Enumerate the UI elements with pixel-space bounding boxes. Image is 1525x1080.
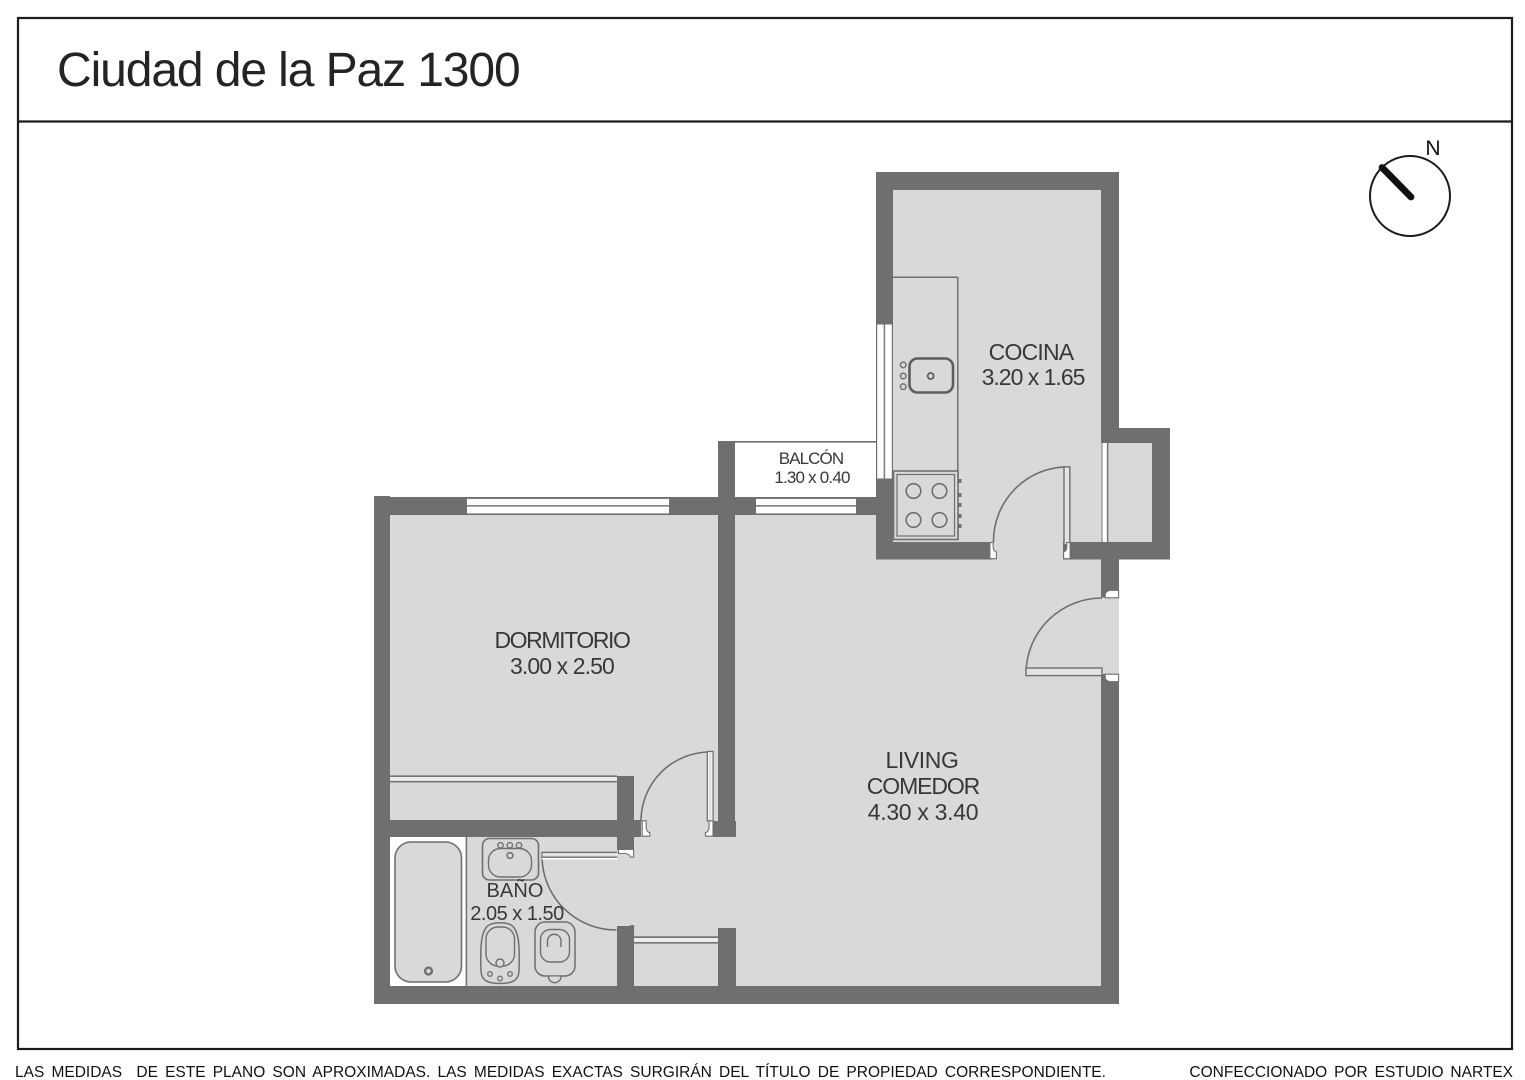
svg-text:BALCÓN: BALCÓN (779, 449, 844, 468)
svg-text:LAS MEDIDAS DE ESTE PLANO SON: LAS MEDIDAS DE ESTE PLANO SON APROXIMADA… (15, 1064, 1106, 1080)
svg-text:4.30 x 3.40: 4.30 x 3.40 (868, 799, 979, 825)
svg-text:DORMITORIO: DORMITORIO (494, 627, 630, 653)
svg-text:3.20 x 1.65: 3.20 x 1.65 (982, 364, 1085, 390)
svg-text:1.30 x 0.40: 1.30 x 0.40 (774, 468, 850, 487)
svg-text:Ciudad de la Paz 1300: Ciudad de la Paz 1300 (57, 44, 520, 97)
svg-text:CONFECCIONADO POR ESTUDIO NART: CONFECCIONADO POR ESTUDIO NARTEX (1189, 1064, 1513, 1080)
svg-text:COMEDOR: COMEDOR (867, 773, 980, 799)
svg-text:COCINA: COCINA (989, 339, 1075, 365)
svg-text:N: N (1425, 137, 1440, 160)
svg-text:3.00 x 2.50: 3.00 x 2.50 (510, 653, 614, 679)
svg-text:BAÑO: BAÑO (486, 878, 543, 902)
svg-text:LIVING: LIVING (885, 747, 958, 773)
